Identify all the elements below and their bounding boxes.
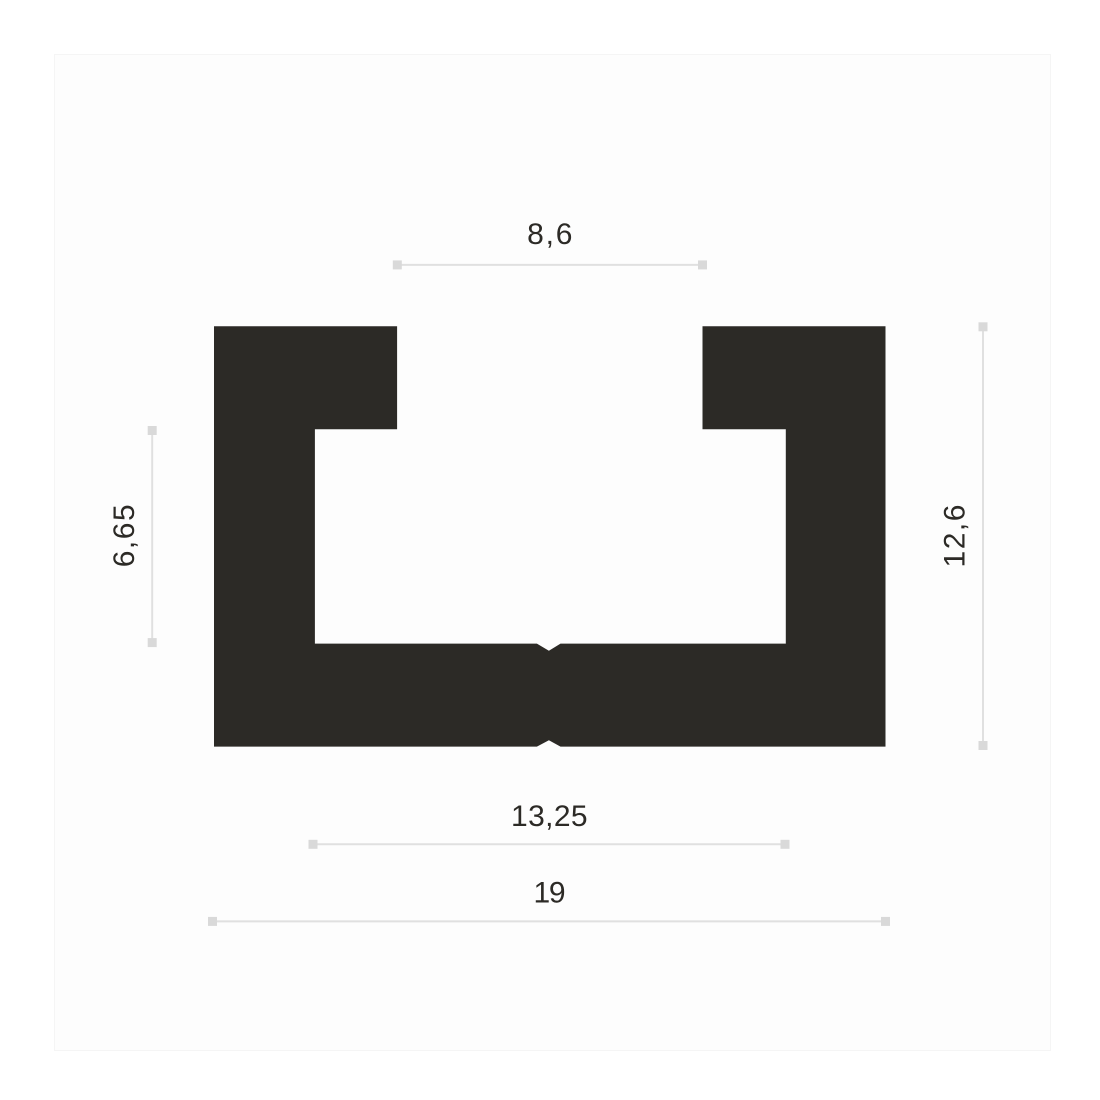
svg-text:8,6: 8,6 xyxy=(527,218,572,251)
svg-text:12,6: 12,6 xyxy=(939,505,972,568)
svg-text:19: 19 xyxy=(534,877,566,910)
svg-text:6,65: 6,65 xyxy=(108,504,141,567)
svg-text:13,25: 13,25 xyxy=(511,800,588,833)
